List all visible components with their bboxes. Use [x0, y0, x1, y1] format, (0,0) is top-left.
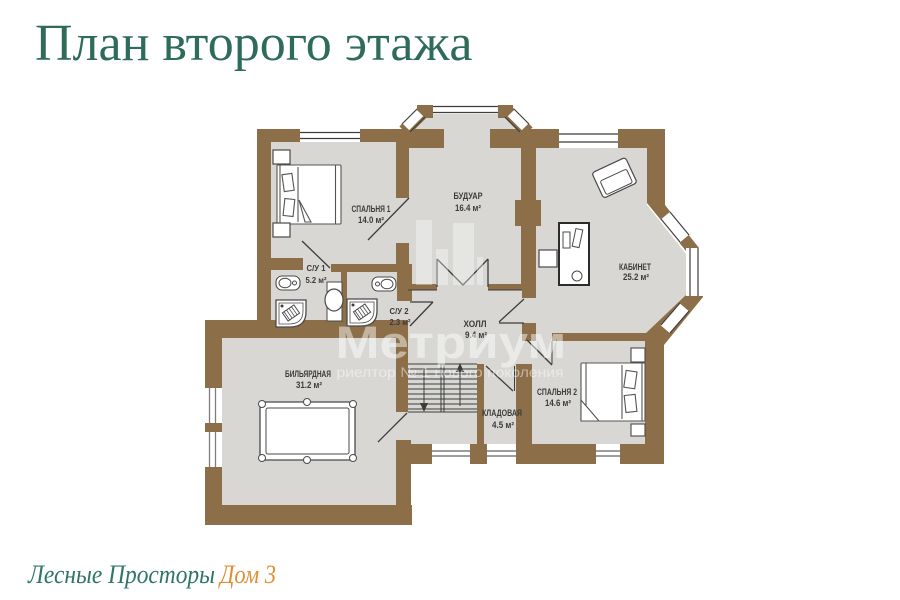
svg-text:СПАЛЬНЯ 1: СПАЛЬНЯ 1 [352, 204, 391, 214]
svg-text:25.2 м²: 25.2 м² [623, 272, 649, 282]
svg-text:БИЛЬЯРДНАЯ: БИЛЬЯРДНАЯ [285, 369, 331, 379]
svg-text:31.2 м²: 31.2 м² [296, 380, 322, 390]
svg-text:риелтор № 1 нового поколения: риелтор № 1 нового поколения [337, 364, 564, 380]
svg-text:СПАЛЬНЯ 2: СПАЛЬНЯ 2 [537, 387, 577, 397]
svg-text:5.2 м²: 5.2 м² [306, 275, 327, 285]
svg-text:Метриум: Метриум [336, 317, 567, 368]
svg-text:4.5 м²: 4.5 м² [492, 420, 514, 430]
svg-text:КАБИНЕТ: КАБИНЕТ [619, 262, 651, 272]
svg-text:С/У 2: С/У 2 [390, 306, 409, 316]
svg-text:Лесные Просторы: Лесные Просторы [27, 560, 215, 589]
svg-text:КЛАДОВАЯ: КЛАДОВАЯ [482, 408, 522, 418]
svg-text:БУДУАР: БУДУАР [454, 191, 483, 201]
svg-text:16.4 м²: 16.4 м² [455, 203, 481, 213]
svg-text:Дом 3: Дом 3 [217, 560, 276, 589]
svg-text:С/У 1: С/У 1 [307, 263, 326, 273]
svg-text:14.6 м²: 14.6 м² [545, 398, 571, 408]
svg-text:14.0 м²: 14.0 м² [358, 215, 384, 225]
svg-text:План второго этажа: План второго этажа [35, 15, 473, 72]
